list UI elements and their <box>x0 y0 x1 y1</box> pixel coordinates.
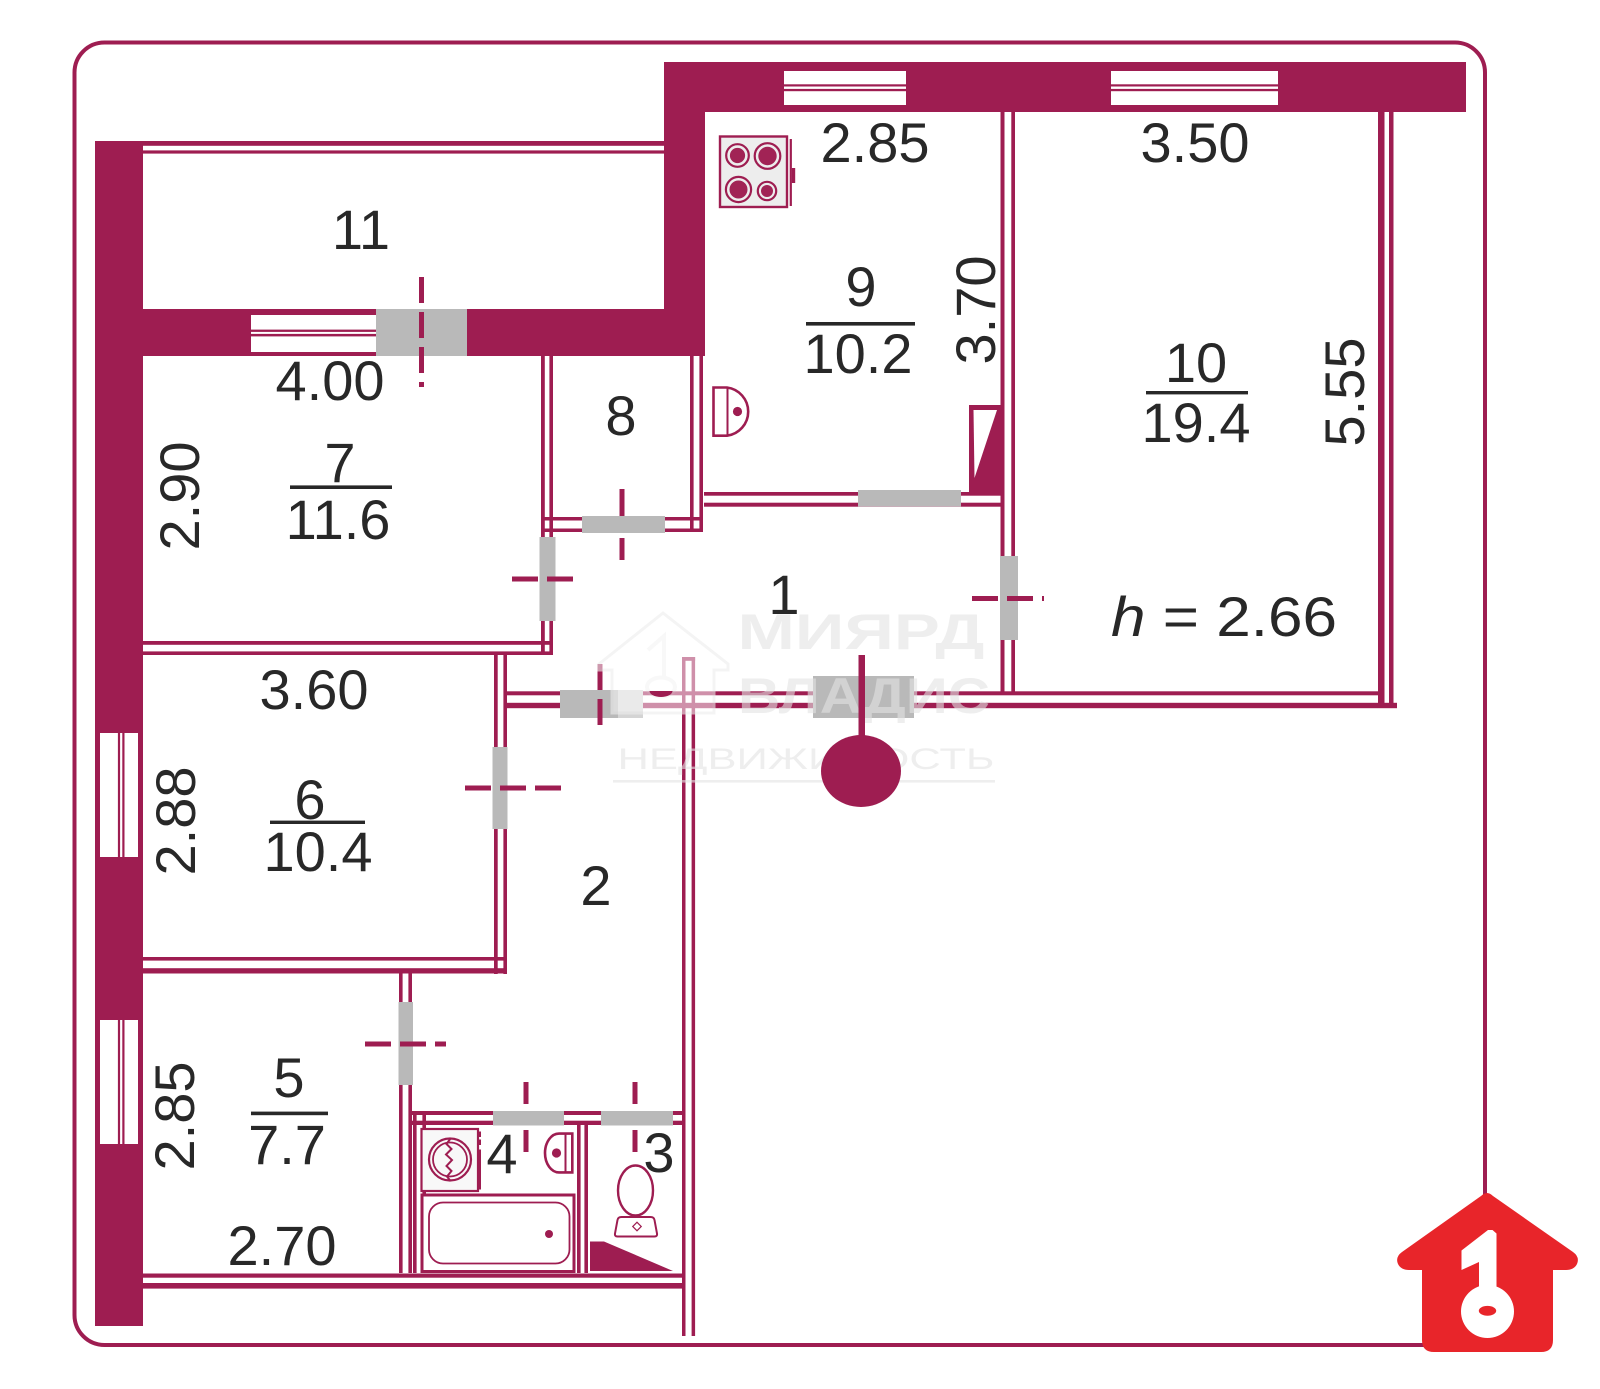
svg-text:10: 10 <box>1165 331 1227 394</box>
svg-text:5: 5 <box>273 1046 304 1109</box>
svg-text:3.60: 3.60 <box>260 658 369 721</box>
svg-text:11.6: 11.6 <box>286 488 391 551</box>
svg-text:10.4: 10.4 <box>264 820 373 883</box>
svg-text:4.00: 4.00 <box>276 349 385 412</box>
svg-text:3: 3 <box>643 1121 674 1184</box>
svg-text:2.88: 2.88 <box>144 767 207 876</box>
svg-text:11: 11 <box>332 198 390 261</box>
svg-text:2.90: 2.90 <box>148 442 211 551</box>
svg-text:2.85: 2.85 <box>821 111 930 174</box>
svg-text:3.50: 3.50 <box>1141 111 1250 174</box>
svg-text:9: 9 <box>845 255 876 318</box>
svg-text:19.4: 19.4 <box>1142 391 1251 454</box>
svg-text:2: 2 <box>580 854 611 917</box>
svg-text:4: 4 <box>486 1122 517 1185</box>
svg-text:3.70: 3.70 <box>944 256 1007 365</box>
svg-text:7.7: 7.7 <box>248 1113 326 1176</box>
svg-text:2.70: 2.70 <box>228 1214 337 1277</box>
svg-text:10.2: 10.2 <box>804 322 913 385</box>
svg-text:НЕДВИЖИМОСТЬ: НЕДВИЖИМОСТЬ <box>618 743 995 776</box>
svg-text:5.55: 5.55 <box>1313 338 1376 447</box>
svg-text:7: 7 <box>324 431 355 494</box>
svg-text:2.85: 2.85 <box>143 1062 206 1171</box>
svg-text:8: 8 <box>605 384 636 447</box>
svg-text:МИЯРД: МИЯРД <box>738 604 985 660</box>
svg-text:h = 2.66: h = 2.66 <box>1111 585 1337 648</box>
